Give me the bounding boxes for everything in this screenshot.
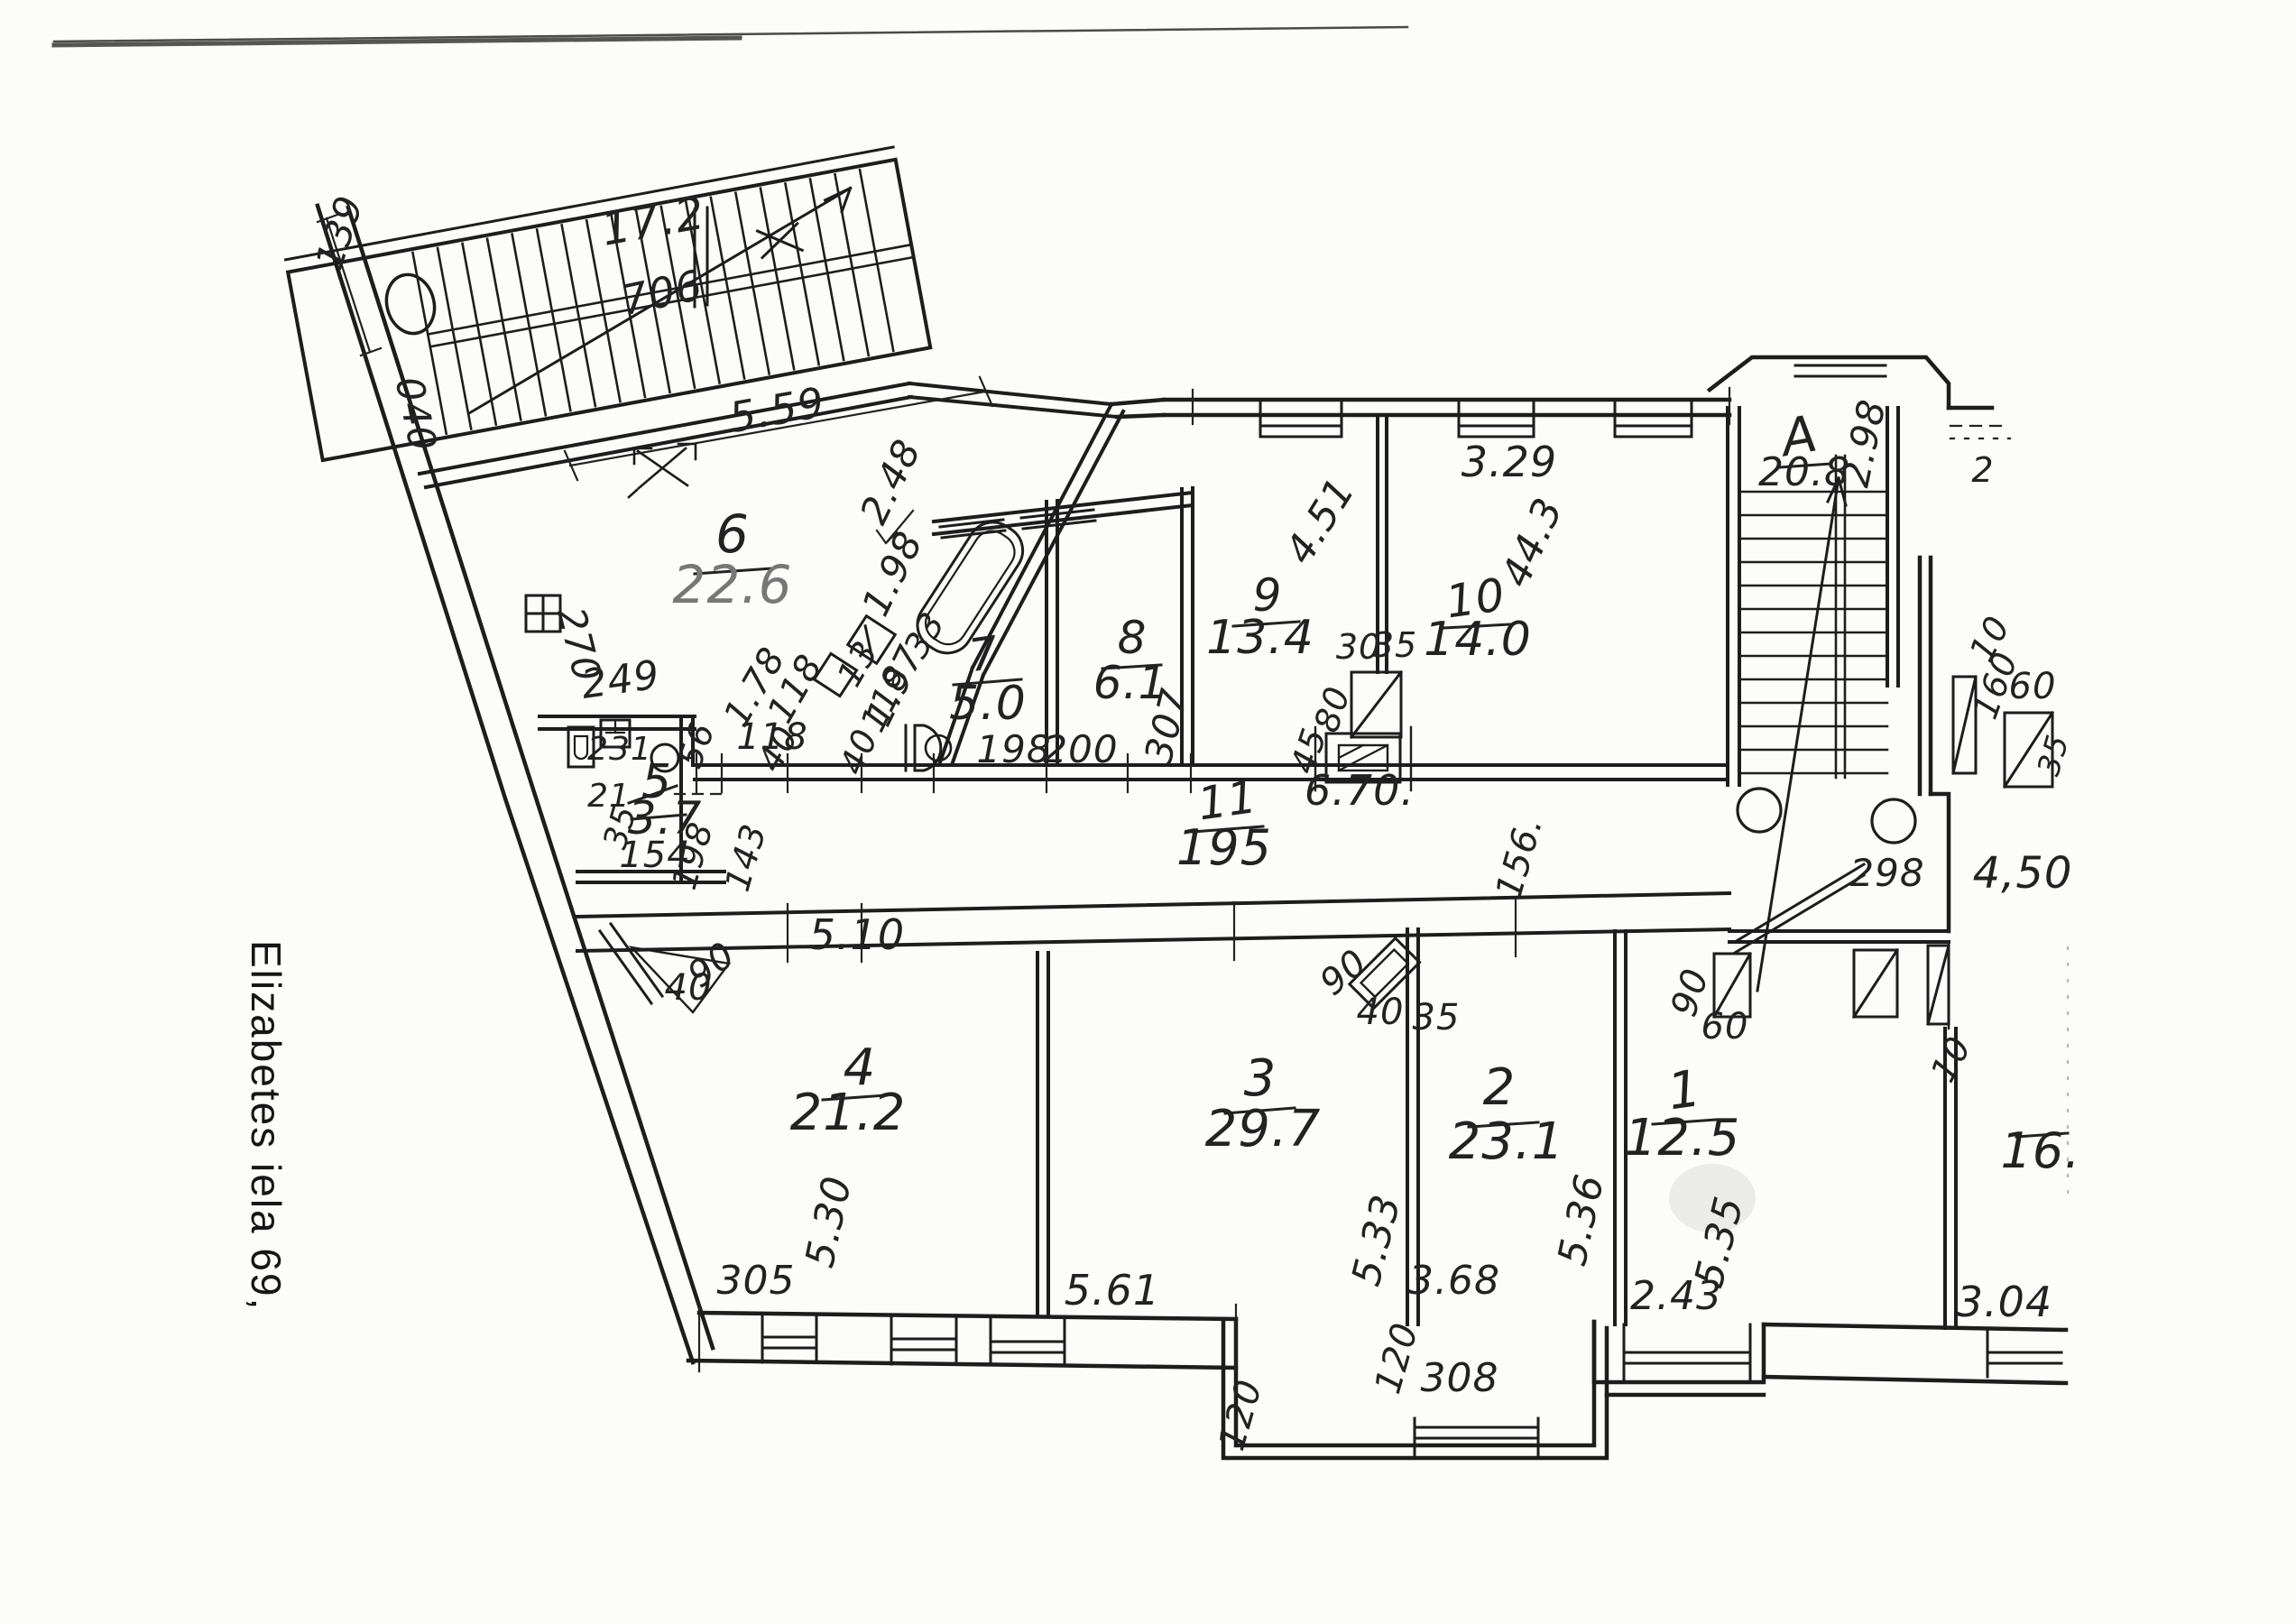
dimension-label: 4,50	[1973, 848, 2073, 899]
dimension-label: 5.30	[797, 1172, 861, 1271]
dimension-label: 5.33	[1343, 1190, 1410, 1290]
floor-plan-drawing: 622.675.086.1913.41014.011195421.2329.72…	[0, 0, 2296, 1624]
dimension-label: 4.51	[1277, 470, 1364, 573]
dimension-lines	[318, 215, 2010, 1371]
room-11-area: 195	[1176, 819, 1272, 876]
room-9-area: 13.4	[1206, 611, 1314, 665]
dimension-label: 44.3	[1493, 491, 1572, 594]
dimension-label: 3.29	[1462, 438, 1557, 486]
dimension-label: 5.61	[1065, 1266, 1160, 1315]
dimension-label: 2.48	[852, 432, 930, 531]
floor-plan-scan: Elizabetes iela 69,	[0, 0, 2296, 1624]
dimension-label: 60	[2009, 666, 2057, 707]
dimension-label: 120	[1367, 1318, 1426, 1398]
dimension-label: 35	[1372, 625, 1417, 665]
dimension-label: 143	[717, 819, 774, 896]
dimension-label: 5.59	[725, 377, 828, 442]
dimension-label: 40	[665, 967, 713, 1009]
dimension-label: 118	[736, 716, 807, 758]
room-10-area: 14.0	[1424, 613, 1532, 667]
dimension-label: 270	[549, 603, 610, 687]
dimension-label: 231	[587, 731, 652, 768]
dimension-label: 305	[717, 1258, 796, 1304]
dimension-label: 120	[1211, 1375, 1270, 1455]
dimension-label: 5.10	[809, 910, 905, 959]
dimension-label: 6.70.	[1305, 766, 1415, 815]
room-7-area: 5.0	[949, 677, 1027, 731]
dimension-label: 3.04	[1957, 1278, 2052, 1326]
stair-hall-area: 17.2	[597, 187, 709, 256]
room-4-area: 21.2	[790, 1084, 907, 1142]
dimension-label: 198	[976, 727, 1051, 771]
dimension-label: 298	[1849, 851, 1924, 895]
dimension-label: 308	[1421, 1355, 1499, 1401]
room-2-area: 23.1	[1449, 1112, 1565, 1171]
dimension-label: 5.36	[1549, 1170, 1613, 1269]
room-6-area: 22.6	[672, 554, 792, 615]
dimension-label: 3.68	[1408, 1258, 1500, 1304]
dimension-label: 200	[1043, 727, 1118, 771]
dimension-label: 706	[617, 260, 707, 325]
room-3-area: 29.7	[1205, 1100, 1322, 1158]
address-label: Elizabetes iela 69,	[242, 940, 290, 1311]
room-16-area: 16.	[2001, 1122, 2081, 1179]
dimension-label: 60	[1701, 1006, 1749, 1047]
column-symbol	[380, 269, 440, 338]
dimension-label: 10	[1923, 1029, 1978, 1088]
dimension-label: 40	[1357, 992, 1405, 1033]
vent-hatch-symbol	[629, 444, 696, 497]
dimension-label: 35	[1413, 997, 1461, 1038]
room-2-number: 2	[1483, 1058, 1517, 1117]
dimension-label: 2	[1971, 450, 1994, 490]
dimension-label: 2.98	[1833, 395, 1895, 491]
room-7-number: 7	[965, 626, 1002, 682]
dimension-label: 156.	[1489, 811, 1552, 903]
dimension-label: 139	[307, 189, 372, 274]
room-1-area: 12.5	[1625, 1109, 1741, 1167]
